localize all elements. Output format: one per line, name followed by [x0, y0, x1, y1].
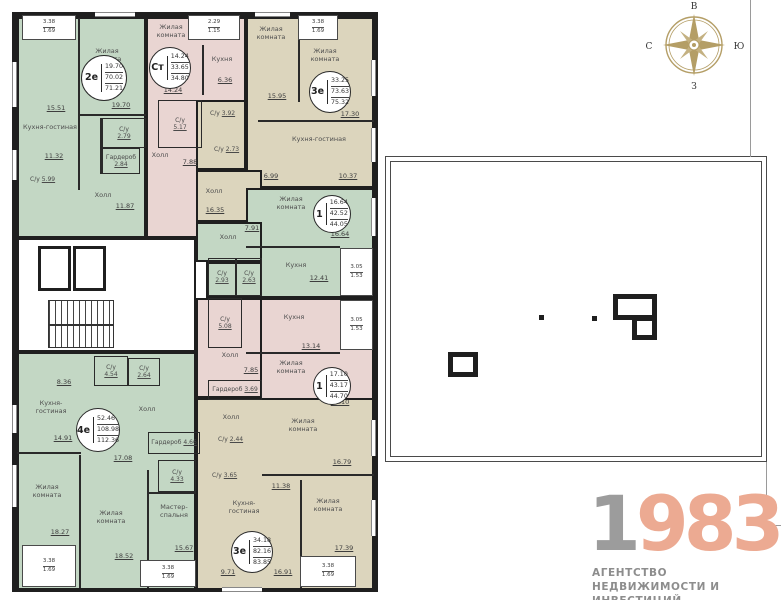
room-area: 8.36 [52, 378, 76, 386]
balcony-area: 3.05 [350, 317, 362, 326]
room-area: 10.37 [330, 172, 366, 180]
room-label-master-bedroom: Мастер-спальня [150, 504, 198, 520]
column-dot [592, 316, 597, 321]
column-dot [539, 315, 544, 320]
room-label-kitchen: Кухня-гостиная [22, 124, 78, 132]
balcony-area: 3.38 [43, 19, 55, 28]
compass-rose: В Ю З С [642, 0, 746, 92]
apartment-circle-st[interactable]: Ст 14.24 33.65 34.80 [149, 47, 191, 89]
bathroom-4e-3: С/у4.33 [158, 460, 196, 492]
bathroom-1g-2: С/у2.63 [236, 258, 262, 296]
logo-subtitle-line1: АГЕНТСТВО [592, 566, 781, 580]
staircase [48, 300, 114, 348]
bathroom-3eb-2-label: С/у3.65 [212, 472, 237, 479]
compass-label-south: Ю [734, 42, 745, 52]
apartment-stat: 42.52 [330, 208, 348, 220]
apartment-circle-3e-bottom[interactable]: 3е 34.18 82.16 83.85 [231, 531, 273, 573]
room-area: 4.33 [170, 476, 183, 484]
room-area: 4.54 [104, 371, 117, 379]
balcony-area: 2.29 [208, 19, 220, 28]
balcony-area: 3.38 [43, 558, 55, 567]
balcony-area: 3.38 [312, 19, 324, 28]
apartment-type: 1 [316, 203, 327, 225]
apartment-stat: 33.65 [171, 62, 189, 74]
apartment-stat: 112.36 [97, 436, 119, 446]
apartment-circle-3e-top[interactable]: 3е 33.25 73.63 75.32 [309, 71, 351, 113]
balcony-1-pink: 3.051.53 [340, 300, 373, 350]
bathroom-1g-1: С/у2.93 [208, 258, 236, 296]
apartment-type: 3е [233, 540, 250, 565]
room-label-living: Жилая комната [248, 26, 294, 42]
room-area: 2.73 [226, 146, 239, 153]
room-label-hall: Холл [88, 192, 118, 200]
compass-label-east: В [691, 2, 698, 12]
bathroom-4e-2: С/у2.64 [128, 358, 160, 386]
logo-digits-accent: 983 [636, 479, 780, 568]
room-area: 13.14 [296, 342, 326, 350]
apartment-stat: 34.80 [171, 74, 189, 84]
room-label-kitchen: Кухня [278, 262, 314, 270]
apartment-stat: 17.10 [330, 370, 348, 380]
bathroom-3e-2-label: С/у2.73 [214, 146, 239, 153]
apartment-circle-2e[interactable]: 2е 19.70 70.02 71.21 [81, 55, 127, 101]
room-area: 3.69 [244, 386, 257, 394]
room-label-hall: Холл [214, 234, 242, 242]
room-area: 4.66 [183, 439, 196, 447]
apartment-stat: 108.98 [97, 424, 119, 436]
window [12, 150, 17, 180]
logo-1983: 1983 [588, 486, 780, 562]
balcony-area: 1.69 [312, 28, 324, 36]
balcony-area: 1.53 [350, 326, 362, 334]
bathroom-1p: С/у5.08 [208, 298, 242, 348]
balcony-area: 1.69 [43, 28, 55, 36]
room-label: С/у [214, 146, 224, 153]
room-label-living: Жилая комната [148, 24, 194, 40]
bathroom-4e-1: С/у4.54 [94, 356, 128, 386]
room-label-living: Жилая комната [88, 510, 134, 526]
elevator-shaft [73, 246, 106, 291]
wall [78, 18, 80, 190]
room-label-living: Жилая комната [300, 48, 350, 64]
wall [258, 120, 374, 122]
balcony-3e-bottom: 3.381.69 [300, 556, 356, 587]
wardrobe-4e: Гардероб4.66 [148, 432, 200, 454]
room-area: 6.99 [258, 172, 284, 180]
room-area: 5.17 [173, 124, 186, 132]
window [371, 60, 376, 96]
room-area: 2.84 [114, 161, 127, 169]
balcony-1-green: 3.051.53 [340, 248, 373, 296]
shaft-outline-square [448, 352, 478, 377]
room-label: С/у [218, 436, 228, 443]
terrace-edge-line [750, 0, 751, 157]
apartment-stat: 34.18 [253, 536, 271, 546]
bathroom-2e-2-label: С/у5.99 [30, 176, 55, 183]
room-label-hall: Холл [200, 188, 228, 196]
apartment-type: 2е [85, 64, 102, 91]
apartment-stat: 14.24 [171, 52, 189, 62]
apartment-stat: 82.16 [253, 546, 271, 558]
room-area: 16.35 [200, 206, 230, 214]
room-area: 7.88 [176, 158, 204, 166]
room-label-living: Жилая комната [24, 484, 70, 500]
wall [148, 492, 196, 494]
apartment-stat: 52.46 [97, 414, 119, 424]
wall [202, 45, 204, 95]
apartment-stat: 44.70 [330, 392, 348, 402]
room-area: 2.79 [117, 133, 130, 141]
room-area: 19.70 [104, 101, 138, 109]
balcony-st: 2.291.15 [188, 15, 240, 40]
room-area: 7.85 [238, 366, 264, 374]
window [371, 128, 376, 162]
room-area: 11.32 [38, 152, 70, 160]
room-label: С/у [119, 126, 129, 134]
apartment-type: 4е [77, 417, 94, 443]
balcony-2e: 3.381.69 [22, 15, 76, 40]
room-label-living: Жилая комната [268, 196, 314, 212]
wall [17, 452, 81, 454]
logo-subtitle-line2: НЕДВИЖИМОСТИ И ИНВЕСТИЦИЙ [592, 580, 781, 600]
room-label: С/у [175, 117, 185, 125]
floor-plan-page: 3.381.69 2.291.15 3.381.69 3.051.53 3.05… [0, 0, 781, 600]
balcony-area: 1.69 [43, 567, 55, 575]
room-area: 5.99 [42, 176, 55, 183]
balcony-3e-top: 3.381.69 [298, 15, 338, 40]
apartment-type: 1 [316, 375, 327, 397]
window [371, 198, 376, 236]
room-label-kitchen: Кухня-гостиная [292, 136, 346, 144]
room-label-kitchen: Кухня-гостиная [222, 500, 266, 516]
room-label-hall: Холл [146, 152, 174, 160]
room-label-kitchen: Кухня-гостиная [26, 400, 76, 416]
room-area: 5.08 [218, 323, 231, 331]
balcony-area: 3.38 [322, 563, 334, 572]
bathroom-3eb-1-label: С/у2.44 [218, 436, 243, 443]
room-label: Гардероб [106, 154, 136, 162]
room-area: 18.52 [110, 552, 138, 560]
wardrobe-2e: Гардероб2.84 [102, 148, 140, 174]
terrace-outline [385, 156, 767, 462]
apartment-stat: 19.70 [105, 62, 123, 72]
room-label: Гардероб [212, 386, 242, 394]
room-area: 18.27 [46, 528, 74, 536]
room-area: 15.67 [170, 544, 198, 552]
bathroom-3e-1-label: С/у3.92 [210, 110, 235, 117]
wall [246, 352, 340, 354]
balcony-area: 1.69 [322, 572, 334, 580]
balcony-area: 3.05 [350, 264, 362, 273]
room-area: 9.71 [216, 568, 240, 576]
wardrobe-1p: Гардероб3.69 [208, 380, 262, 400]
room-label: С/у [220, 316, 230, 324]
apartment-stat: 16.64 [330, 198, 348, 208]
compass-label-west: З [691, 82, 697, 92]
room-label: Гардероб [151, 439, 181, 447]
apartment-circle-1-green[interactable]: 1 16.64 42.52 44.05 [313, 195, 351, 233]
room-area: 17.39 [330, 544, 358, 552]
window [255, 12, 290, 17]
room-label-hall: Холл [216, 414, 246, 422]
bathroom-st: С/у5.17 [158, 100, 202, 148]
window [12, 62, 17, 107]
elevator-shaft [38, 246, 71, 291]
balcony-area: 1.53 [350, 273, 362, 281]
room-area: 14.91 [48, 434, 78, 442]
apartment-stat: 73.63 [331, 86, 349, 98]
apartment-stat: 83.85 [253, 558, 271, 568]
room-label-hall: Холл [216, 352, 244, 360]
room-label-living: Жилая комната [306, 498, 350, 514]
room-label-living: Жилая комната [280, 418, 326, 434]
wall [262, 474, 374, 476]
balcony-area: 1.69 [162, 574, 174, 582]
apartment-stat: 43.17 [330, 380, 348, 392]
room-area: 15.95 [262, 92, 292, 100]
room-area: 2.63 [242, 277, 255, 285]
apartment-type: Ст [151, 56, 167, 81]
room-label: С/у [172, 469, 182, 477]
wall [246, 246, 340, 248]
corridor-area: 11.38 [266, 482, 296, 490]
room-area: 2.64 [137, 372, 150, 380]
logo-subtitle: АГЕНТСТВО НЕДВИЖИМОСТИ И ИНВЕСТИЦИЙ [592, 566, 781, 600]
apartment-stat: 71.21 [105, 84, 123, 94]
window [95, 12, 135, 17]
window [12, 405, 17, 433]
apartment-stat: 70.02 [105, 72, 123, 84]
window [12, 465, 17, 507]
room-area: 12.41 [304, 274, 334, 282]
room-area: 17.08 [108, 454, 138, 462]
logo-digit-gray: 1 [588, 479, 636, 568]
room-area: 16.79 [328, 458, 356, 466]
terrace-outline-inner [390, 161, 762, 457]
room-label-hall: Холл [132, 406, 162, 414]
balcony-4e-2: 3.381.69 [140, 560, 196, 587]
wall [79, 455, 81, 588]
room-label: С/у [106, 364, 116, 372]
room-area: 15.51 [40, 104, 72, 112]
apartment-stat: 44.05 [330, 220, 348, 230]
room-area: 3.65 [224, 472, 237, 479]
room-label-kitchen: Кухня [204, 56, 240, 64]
apartment-stat: 33.25 [331, 76, 349, 86]
apartment-circle-1-pink[interactable]: 1 17.10 43.17 44.70 [313, 367, 351, 405]
balcony-area: 1.15 [208, 28, 220, 36]
apartment-circle-4e[interactable]: 4е 52.46 108.98 112.36 [76, 408, 120, 452]
compass-label-north: С [646, 42, 653, 52]
room-label: С/у [210, 110, 220, 117]
room-area: 2.44 [230, 436, 243, 443]
room-area: 7.91 [240, 224, 264, 232]
balcony-area: 3.38 [162, 565, 174, 574]
wall [80, 114, 146, 116]
window [222, 587, 262, 592]
room-label: С/у [30, 176, 40, 183]
room-label: С/у [244, 270, 254, 278]
balcony-4e-1: 3.381.69 [22, 545, 76, 587]
room-area: 3.92 [222, 110, 235, 117]
apartment-stat: 75.32 [331, 98, 349, 108]
shaft-outline-l-bottom [632, 316, 657, 340]
bathroom-2e: С/у2.79 [102, 118, 146, 148]
room-area: 11.87 [110, 202, 140, 210]
room-area: 6.36 [212, 76, 238, 84]
room-label: С/у [217, 270, 227, 278]
room-area: 2.93 [215, 277, 228, 285]
room-label-kitchen: Кухня [276, 314, 312, 322]
room-label: С/у [212, 472, 222, 479]
room-label: С/у [139, 365, 149, 373]
room-area: 16.91 [268, 568, 298, 576]
apartment-type: 3е [311, 80, 328, 105]
window [371, 500, 376, 536]
room-label-living: Жилая комната [268, 360, 314, 376]
window [371, 420, 376, 456]
